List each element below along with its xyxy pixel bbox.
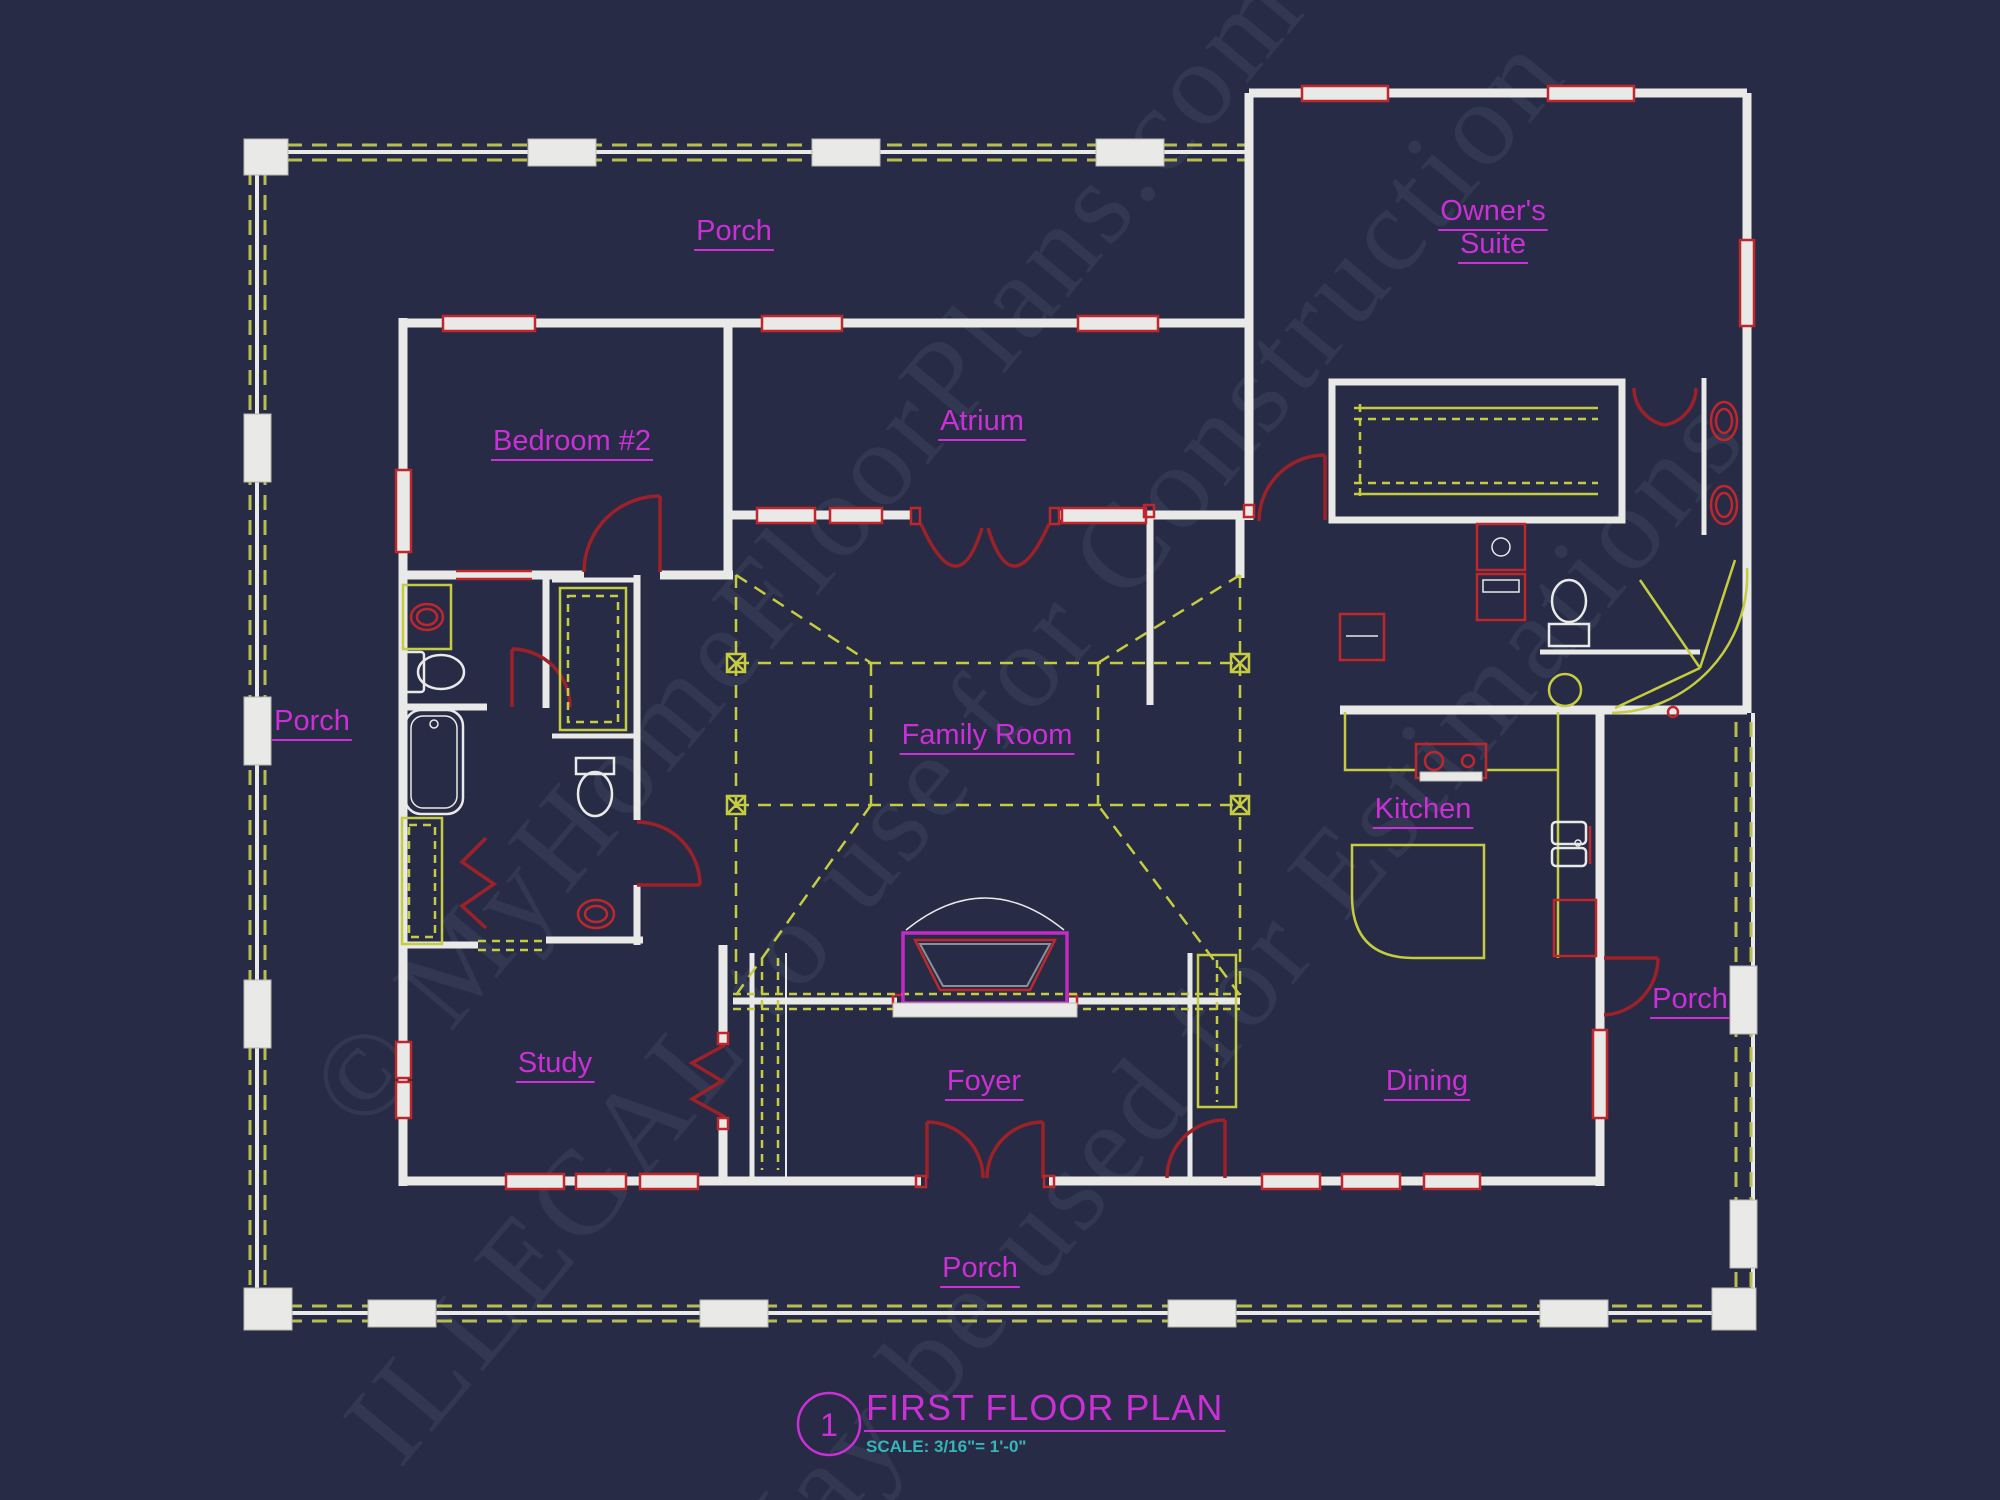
room-label-porch-top: Porch [696,215,772,247]
porch-right-door-swing [1604,958,1658,1015]
toilet [404,652,464,692]
bath-vanity [1340,614,1384,660]
bathtub [405,710,463,814]
drawing-scale: SCALE: 3/16"= 1'-0" [866,1437,1026,1456]
bath-door-swing [512,649,570,707]
room-label-porch-left: Porch [274,705,350,737]
room-label-atrium: Atrium [940,405,1024,437]
room-label-owners-suite-1: Owner's [1440,195,1545,227]
hearth [893,1003,1077,1017]
drawing-title: FIRST FLOOR PLAN [866,1387,1223,1428]
sheet-number: 1 [820,1407,838,1443]
bedroom2-door-swing [584,496,660,572]
room-label-study: Study [518,1047,593,1079]
room-label-porch-bottom: Porch [942,1252,1018,1284]
room-label-family-room: Family Room [902,719,1073,751]
room-label-foyer: Foyer [947,1065,1021,1097]
fireplace [893,898,1077,1017]
room-label-dining: Dining [1386,1065,1468,1097]
floor-plan-canvas: © MyHomeFloorPlans.com ILLEGAL to use fo… [0,0,2000,1500]
room-label-porch-right: Porch [1652,983,1728,1015]
room-label-bedroom2: Bedroom #2 [493,425,651,457]
floor-plan-page: { "drawing": { "type": "architectural-fl… [0,0,2000,1500]
room-label-owners-suite-2: Suite [1460,228,1526,260]
dishwasher [1554,900,1596,956]
room-label-kitchen: Kitchen [1375,793,1472,825]
